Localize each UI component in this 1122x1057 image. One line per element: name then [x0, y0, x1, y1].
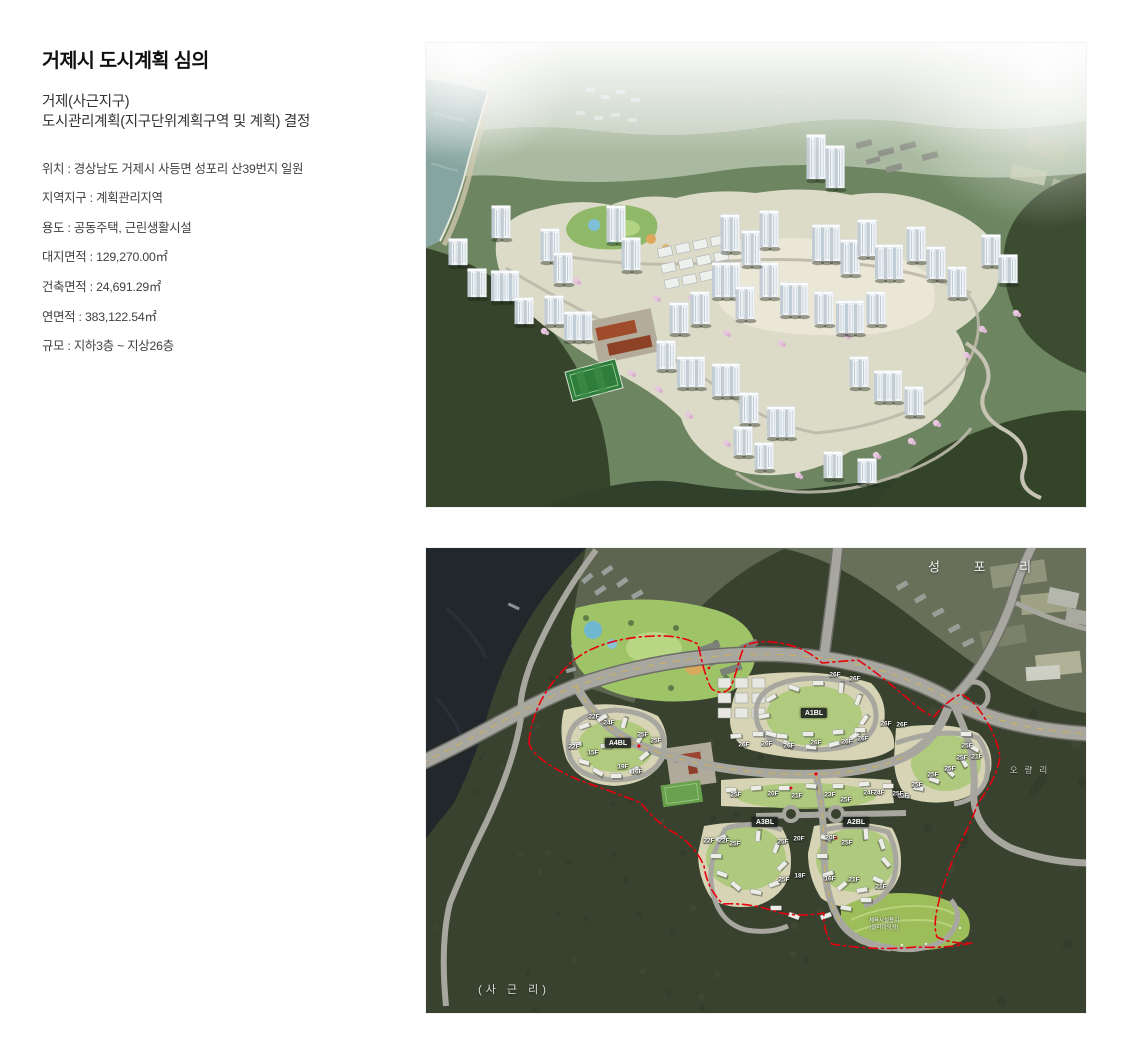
aerial-rendering-graphic — [426, 43, 1086, 507]
page: 거제시 도시계획 심의 거제(사근지구) 도시관리계획(지구단위계획구역 및 계… — [0, 0, 1122, 1057]
detail-site-area: 대지면적 : 129,270.00㎡ — [42, 243, 414, 273]
site-plan-image: 26F26F26F26F26F26F26F26F26F26F25F25F21F2… — [426, 548, 1086, 1013]
detail-bldg-area: 건축면적 : 24,691.29㎡ — [42, 273, 414, 303]
detail-use: 용도 : 공동주택, 근린생활시설 — [42, 214, 414, 244]
info-panel: 거제시 도시계획 심의 거제(사근지구) 도시관리계획(지구단위계획구역 및 계… — [42, 44, 414, 362]
page-title: 거제시 도시계획 심의 — [42, 44, 414, 73]
aerial-rendering-image — [426, 43, 1086, 507]
subtitle-line-2: 도시관리계획(지구단위계획구역 및 계획) 결정 — [42, 112, 414, 132]
detail-floor-area: 연면적 : 383,122.54㎡ — [42, 303, 414, 333]
detail-scale: 규모 : 지하3층 ~ 지상26층 — [42, 332, 414, 362]
project-details: 위치 : 경상남도 거제시 사등면 성포리 산39번지 일원 지역지구 : 계획… — [42, 155, 414, 362]
project-subtitle: 거제(사근지구) 도시관리계획(지구단위계획구역 및 계획) 결정 — [42, 92, 414, 133]
detail-zone: 지역지구 : 계획관리지역 — [42, 184, 414, 214]
site-plan-graphic — [426, 548, 1086, 1013]
detail-location: 위치 : 경상남도 거제시 사등면 성포리 산39번지 일원 — [42, 155, 414, 185]
subtitle-line-1: 거제(사근지구) — [42, 92, 414, 112]
